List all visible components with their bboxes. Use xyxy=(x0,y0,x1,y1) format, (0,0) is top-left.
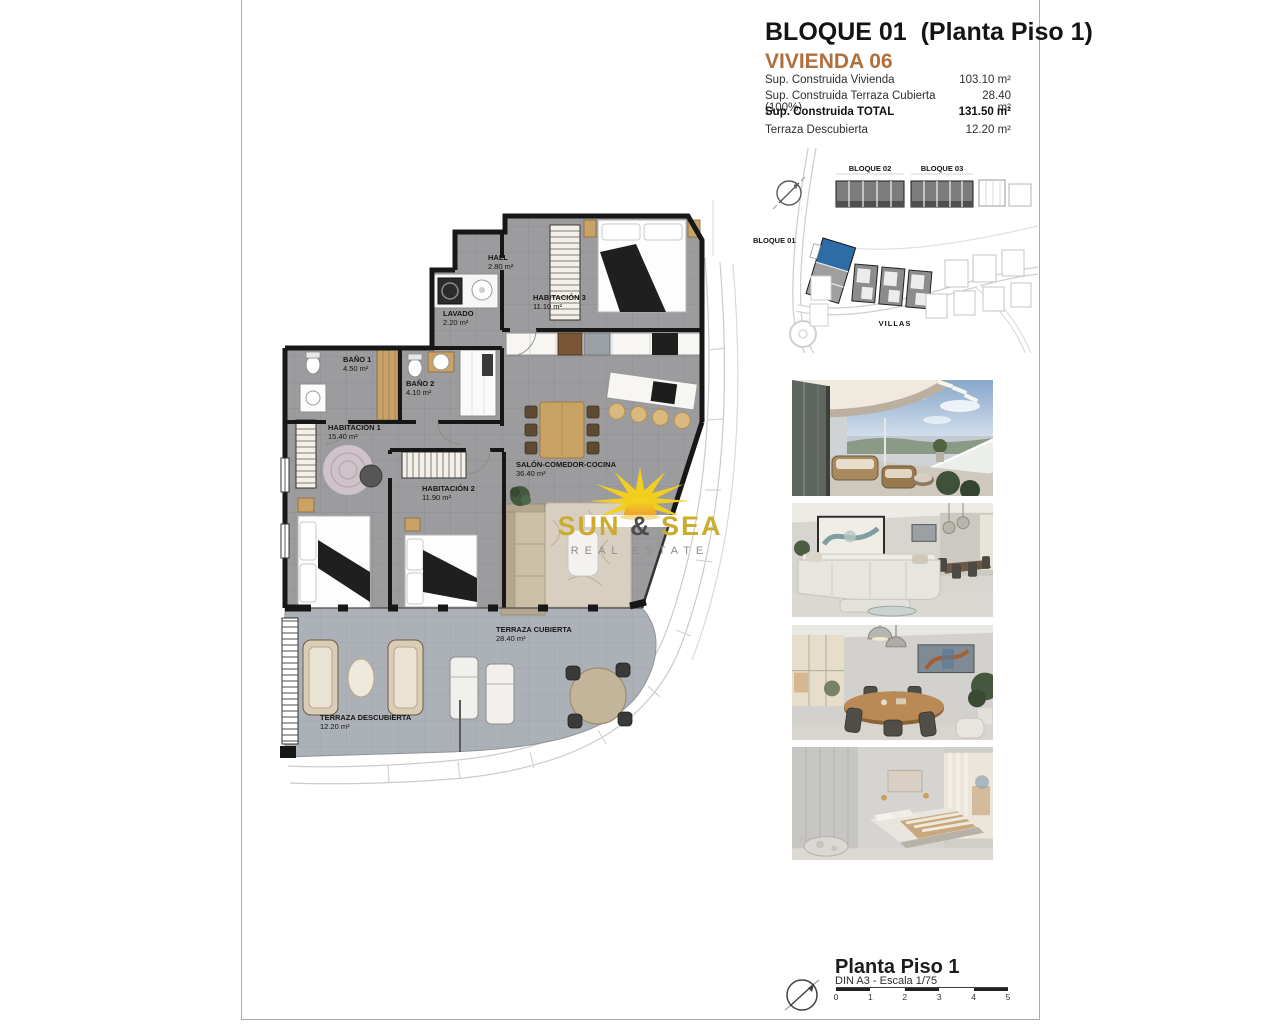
scale-note: DIN A3 - Escala 1/75 xyxy=(835,975,937,987)
page-title: BLOQUE 01 (Planta Piso 1) xyxy=(765,18,1093,47)
room-label-terraza-cubierta: TERRAZA CUBIERTA 28.40 m² xyxy=(496,625,572,643)
scale-bar-segment xyxy=(974,988,1008,991)
surface-row-label: Sup. Construida TOTAL xyxy=(765,106,894,118)
scale-tick: 4 xyxy=(971,992,976,1002)
surface-row-value: 12.20 m² xyxy=(966,124,1011,136)
room-label-lavado: LAVADO 2.20 m² xyxy=(443,309,474,327)
scale-tick: 2 xyxy=(902,992,907,1002)
photo-living-room xyxy=(792,503,993,617)
surface-row-value: 103.10 m² xyxy=(959,74,1011,86)
room-label-habitacion3: HABITACIÓN 3 11.10 m² xyxy=(533,293,586,311)
room-label-bano2: BAÑO 2 4.10 m² xyxy=(406,379,434,397)
room-label-habitacion1: HABITACIÓN 1 15.40 m² xyxy=(328,423,381,441)
room-label-bano1: BAÑO 1 4.50 m² xyxy=(343,355,371,373)
document-canvas: BLOQUE 01 (Planta Piso 1) VIVIENDA 06 Su… xyxy=(0,0,1280,1024)
surface-row-label: Terraza Descubierta xyxy=(765,124,868,136)
site-label-bloque01: BLOQUE 01 xyxy=(753,236,796,245)
scale-tick: 1 xyxy=(868,992,873,1002)
bloque03-building xyxy=(911,174,973,207)
scale-bar-segment xyxy=(836,988,870,991)
scale-bar: 0 1 2 3 4 5 xyxy=(836,987,1008,1004)
room-label-habitacion2: HABITACIÓN 2 11.90 m² xyxy=(422,484,475,502)
photo-dining-room xyxy=(792,625,993,740)
site-label-bloque02: BLOQUE 02 xyxy=(835,164,905,173)
surface-row: Terraza Descubierta 12.20 m² xyxy=(765,124,1011,136)
villas-buildings xyxy=(852,264,932,309)
scale-tick: 0 xyxy=(834,992,839,1002)
surface-row-total: Sup. Construida TOTAL 131.50 m² xyxy=(765,106,1011,118)
photo-bedroom xyxy=(792,747,993,860)
scale-bar-segment xyxy=(905,988,939,991)
site-label-villas: VILLAS xyxy=(860,319,930,328)
watermark-tagline: REAL ESTATE xyxy=(530,545,750,557)
vivienda-subtitle: VIVIENDA 06 xyxy=(765,50,893,74)
room-label-hall: HALL 2.80 m² xyxy=(488,253,513,271)
surface-row-value: 131.50 m² xyxy=(959,106,1011,118)
footer-compass-icon xyxy=(779,972,825,1018)
scale-tick: 5 xyxy=(1006,992,1011,1002)
site-label-bloque03: BLOQUE 03 xyxy=(907,164,977,173)
watermark-title: SUN & SEA xyxy=(530,511,750,542)
surface-row: Sup. Construida Vivienda 103.10 m² xyxy=(765,74,1011,86)
photo-terrace xyxy=(792,380,993,496)
bloque02-building xyxy=(836,174,904,207)
scale-tick: 3 xyxy=(937,992,942,1002)
surface-row-label: Sup. Construida Vivienda xyxy=(765,74,895,86)
room-label-terraza-descubierta: TERRAZA DESCUBIERTA 12.20 m² xyxy=(320,713,411,731)
